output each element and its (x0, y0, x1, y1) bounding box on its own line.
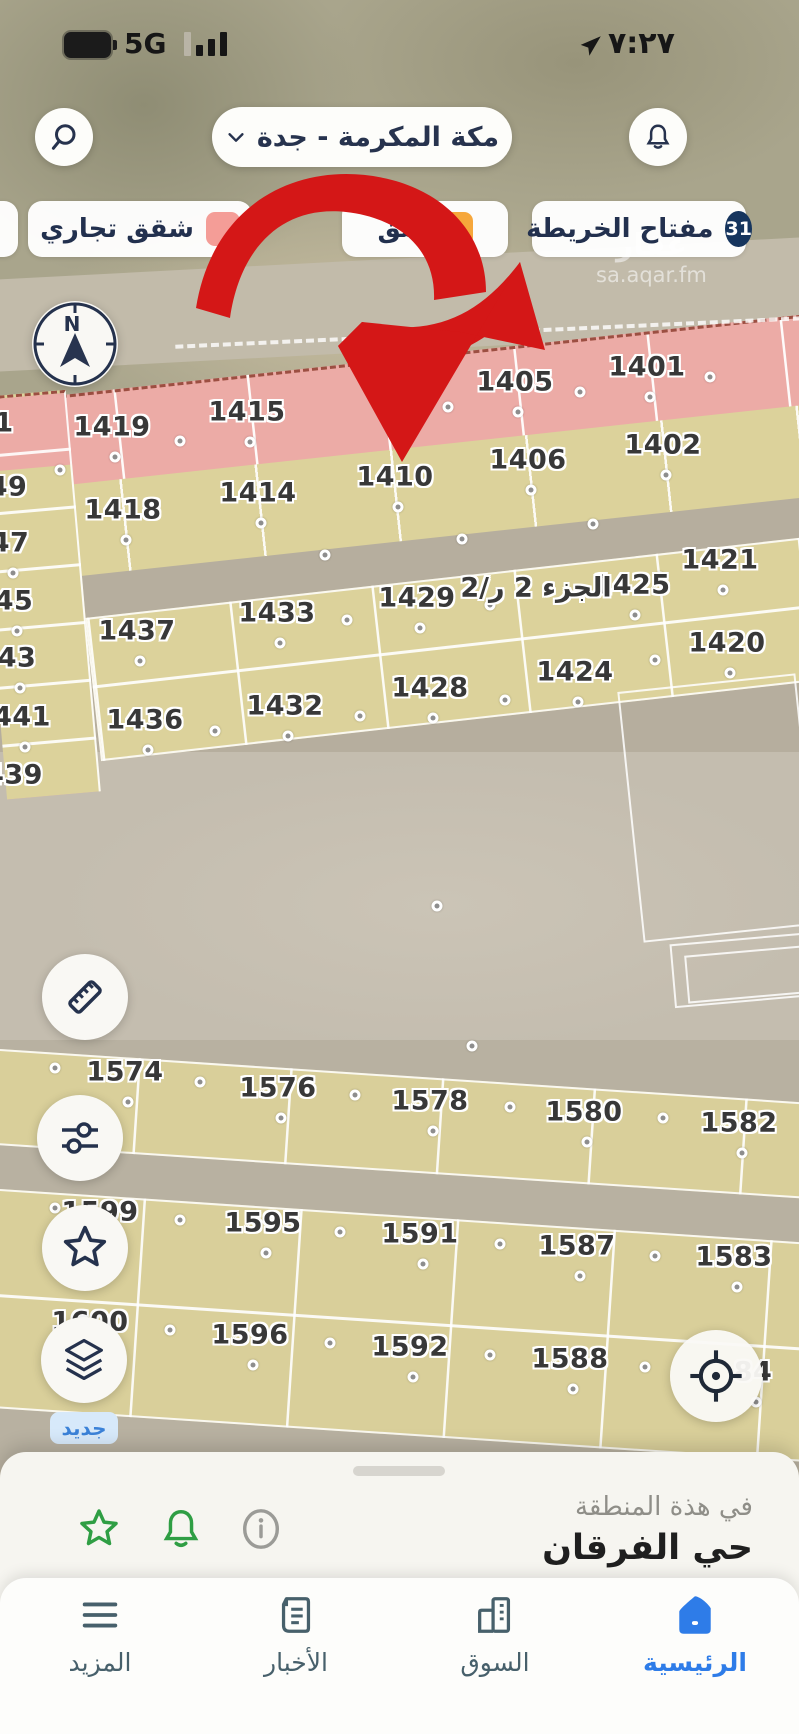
plot-marker-dot (418, 1259, 429, 1270)
plot-marker-dot (50, 1063, 61, 1074)
plot-marker-dot (55, 465, 66, 476)
plot-label[interactable]: 439 (0, 760, 43, 791)
plot-marker-dot (350, 1090, 361, 1101)
plot-label[interactable]: 1419 (73, 412, 150, 443)
plot-label[interactable]: الجزء 2 ر/2 (460, 573, 611, 604)
plot-marker-dot (320, 550, 331, 561)
plot-label[interactable]: 441 (0, 702, 51, 733)
plot-label[interactable]: 1578 (391, 1086, 468, 1117)
plot-label[interactable]: 1436 (106, 705, 183, 736)
plot-marker-dot (505, 1102, 516, 1113)
plot-label[interactable]: 1418 (84, 495, 161, 526)
plot-label[interactable]: 1587 (538, 1231, 615, 1262)
plot-marker-dot (582, 1137, 593, 1148)
plot-marker-dot (248, 1360, 259, 1371)
plot-marker-dot (443, 402, 454, 413)
plot-marker-dot (415, 623, 426, 634)
menu-icon (77, 1592, 123, 1638)
plot-label[interactable]: 1592 (371, 1332, 448, 1363)
plot-label[interactable]: 1410 (356, 462, 433, 493)
plot-label[interactable]: 1401 (608, 352, 685, 383)
plot-marker-dot (342, 615, 353, 626)
plot-marker-dot (495, 1239, 506, 1250)
plot-label[interactable]: 49 (0, 472, 27, 503)
plot-marker-dot (393, 502, 404, 513)
plot-marker-dot (275, 638, 286, 649)
nav-item-market[interactable]: السوق (425, 1592, 565, 1677)
plot-label[interactable]: 1433 (238, 598, 315, 629)
plot-marker-dot (650, 655, 661, 666)
search-icon (49, 122, 79, 152)
layers-button[interactable] (41, 1317, 127, 1403)
plot-marker-dot (276, 1113, 287, 1124)
nav-item-news[interactable]: الأخبار (226, 1592, 366, 1677)
plot-marker-dot (12, 626, 23, 637)
plot-marker-dot (630, 610, 641, 621)
plot-marker-dot (640, 1362, 651, 1373)
plot-marker-dot (588, 519, 599, 530)
plot-marker-dot (428, 713, 439, 724)
plot-marker-dot (513, 407, 524, 418)
legend-chip-apartments[interactable]: شق (342, 201, 508, 257)
plot-label[interactable]: 1405 (476, 367, 553, 398)
search-button[interactable] (35, 108, 93, 166)
plot-marker-dot (645, 392, 656, 403)
plot-marker-dot (165, 1325, 176, 1336)
sheet-drag-handle[interactable] (353, 1466, 445, 1476)
plot-label[interactable]: 1583 (695, 1242, 772, 1273)
plot-marker-dot (573, 697, 584, 708)
layers-icon (58, 1334, 110, 1386)
svg-text:N: N (64, 312, 81, 336)
status-bar: 5G ٧:٢٧ (0, 0, 799, 80)
plot-marker-dot (732, 1282, 743, 1293)
legend-color-orange (439, 212, 473, 246)
district-name: حي الفرقان (542, 1528, 753, 1568)
plot-label[interactable]: 1574 (86, 1057, 163, 1088)
chevron-down-icon (225, 126, 247, 148)
plot-marker-dot (575, 387, 586, 398)
legend-chip-partial[interactable] (0, 201, 18, 257)
filters-button[interactable] (37, 1095, 123, 1181)
city-selector-dropdown[interactable]: مكة المكرمة - جدة (212, 107, 512, 167)
plot-marker-dot (325, 1338, 336, 1349)
crosshair-icon (688, 1348, 744, 1404)
network-label: 5G (124, 27, 166, 60)
plot-marker-dot (737, 1148, 748, 1159)
map-key-chip[interactable]: مفتاح الخريطة 31 (532, 201, 746, 257)
home-icon (672, 1592, 718, 1638)
plot-label[interactable]: 1424 (536, 657, 613, 688)
plot-label[interactable]: 1580 (545, 1097, 622, 1128)
plot-label[interactable]: 1596 (211, 1320, 288, 1351)
plot-label[interactable]: 1591 (381, 1219, 458, 1250)
plot-marker-dot (725, 668, 736, 679)
plot-label[interactable]: 1402 (624, 430, 701, 461)
battery-icon (64, 32, 111, 58)
plot-marker-dot (718, 585, 729, 596)
plot-marker-dot (135, 656, 146, 667)
plot-label[interactable]: 1414 (219, 478, 296, 509)
watermark-url: sa.aqar.fm (596, 263, 707, 287)
plot-marker-dot (256, 518, 267, 529)
star-icon (76, 1506, 122, 1552)
plot-label[interactable]: 1421 (681, 545, 758, 576)
area-context-label: في هذة المنطقة (575, 1492, 753, 1522)
plot-label[interactable]: 1437 (98, 616, 175, 647)
plot-label[interactable]: 1576 (239, 1073, 316, 1104)
location-services-icon (578, 33, 604, 59)
legend-color-pink (206, 212, 240, 246)
plot-marker-dot (428, 1126, 439, 1137)
bell-icon (158, 1506, 204, 1552)
plot-marker-dot (705, 372, 716, 383)
plot-label[interactable]: 1429 (378, 583, 455, 614)
sliders-icon (56, 1114, 104, 1162)
plot-label[interactable]: 1406 (489, 445, 566, 476)
app-screen: 1401140514151419114021406141014141418494… (0, 0, 799, 1734)
measure-button[interactable] (42, 954, 128, 1040)
plot-label[interactable]: 1432 (246, 691, 323, 722)
ruler-icon (61, 973, 109, 1021)
plot-marker-dot (261, 1248, 272, 1259)
plot-marker-dot (568, 1384, 579, 1395)
plot-marker-dot (50, 1203, 61, 1214)
nav-item-more[interactable]: المزيد (30, 1592, 170, 1677)
info-icon (238, 1506, 284, 1552)
save-area-button[interactable] (76, 1506, 122, 1556)
plot-marker-dot (121, 535, 132, 546)
plot-marker-dot (658, 1113, 669, 1124)
parcel-boundary (684, 944, 799, 1003)
plot-label[interactable]: 1595 (224, 1208, 301, 1239)
plot-label[interactable]: 1428 (391, 673, 468, 704)
buildings-icon (472, 1592, 518, 1638)
plot-marker-dot (175, 1215, 186, 1226)
map-key-label: مفتاح الخريطة (526, 214, 713, 244)
notifications-button[interactable] (629, 108, 687, 166)
plot-marker-dot (457, 534, 468, 545)
nav-item-home[interactable]: الرئيسية (625, 1592, 765, 1677)
plot-marker-dot (143, 745, 154, 756)
plot-label[interactable]: 1 (0, 408, 14, 439)
plot-marker-dot (110, 452, 121, 463)
plot-marker-dot (8, 568, 19, 579)
plot-label[interactable]: 1588 (531, 1344, 608, 1375)
plot-label[interactable]: 1420 (688, 628, 765, 659)
clock-time: ٧:٢٧ (608, 26, 675, 61)
plot-label[interactable]: 43 (0, 643, 36, 674)
legend-chip-commercial-apartments[interactable]: شقق تجاري (28, 201, 252, 257)
favorites-button[interactable] (42, 1205, 128, 1291)
plot-label[interactable]: 1415 (208, 397, 285, 428)
bell-icon (643, 122, 673, 152)
star-icon (59, 1222, 111, 1274)
plot-marker-dot (15, 683, 26, 694)
news-icon (273, 1592, 319, 1638)
new-feature-badge: جديد (50, 1412, 118, 1444)
plot-marker-dot (175, 436, 186, 447)
plot-marker-dot (485, 1350, 496, 1361)
plot-marker-dot (432, 901, 443, 912)
plot-marker-dot (526, 485, 537, 496)
signal-strength-icon (184, 30, 230, 56)
compass-icon: N (32, 301, 118, 387)
plot-marker-dot (650, 1251, 661, 1262)
plot-marker-dot (467, 1041, 478, 1052)
plot-marker-dot (283, 731, 294, 742)
plot-label[interactable]: 1582 (700, 1108, 777, 1139)
plot-marker-dot (408, 1372, 419, 1383)
area-alerts-button[interactable] (158, 1506, 204, 1556)
map-key-count-badge: 31 (725, 211, 751, 247)
city-selector-label: مكة المكرمة - جدة (257, 122, 499, 153)
plot-marker-dot (335, 1227, 346, 1238)
parcel-boundary (617, 673, 799, 942)
plot-label[interactable]: 45 (0, 586, 33, 617)
locate-me-button[interactable] (670, 1330, 762, 1422)
plot-marker-dot (500, 695, 511, 706)
plot-marker-dot (195, 1077, 206, 1088)
plot-marker-dot (575, 1271, 586, 1282)
plot-marker-dot (210, 726, 221, 737)
plot-marker-dot (661, 470, 672, 481)
plot-marker-dot (245, 437, 256, 448)
plot-marker-dot (123, 1097, 134, 1108)
area-info-button[interactable] (238, 1506, 284, 1556)
plot-marker-dot (20, 742, 31, 753)
plot-label[interactable]: 47 (0, 528, 29, 559)
compass[interactable]: N (32, 301, 118, 387)
plot-marker-dot (355, 711, 366, 722)
